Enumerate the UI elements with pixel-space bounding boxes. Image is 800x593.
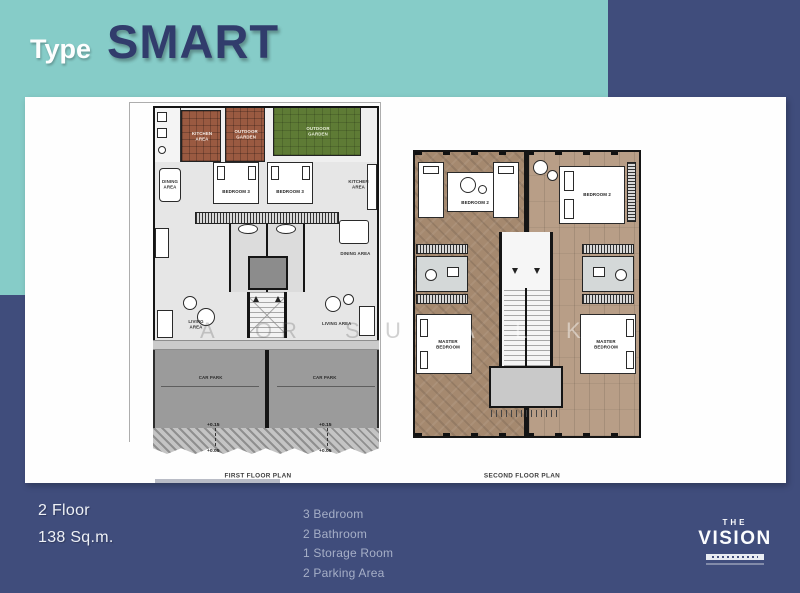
second-floor-caption: SECOND FLOOR PLAN: [462, 472, 582, 479]
wardrobe-strip: [416, 294, 468, 304]
spec-list: 3 Bedroom 2 Bathroom 1 Storage Room 2 Pa…: [303, 505, 393, 583]
wardrobe-strip: [416, 244, 468, 254]
table-icon: [460, 177, 476, 193]
party-wall: [265, 350, 269, 428]
table-icon: [183, 296, 197, 310]
dining-table-icon: [159, 168, 181, 202]
kitchen-area-left: KITCHEN AREA: [181, 110, 221, 162]
master-bed-right: MASTER BEDROOM: [580, 314, 636, 374]
type-label: Type: [30, 34, 91, 65]
pillow-icon: [626, 351, 634, 369]
bathroom-left: [416, 256, 468, 292]
closet-strip: [195, 212, 339, 224]
pillow-icon: [217, 166, 225, 180]
logo-the-text: THE: [697, 518, 773, 527]
bed-icon: BEDROOM 2: [559, 166, 625, 224]
brochure-page: Type SMART KITCHEN AREA: [0, 0, 800, 593]
logo-vision-text: VISION: [697, 528, 773, 550]
toilet-icon: [238, 224, 258, 234]
kitchen-nook: [153, 106, 181, 162]
wardrobe-strip: [627, 162, 636, 222]
master-bed-left: MASTER BEDROOM: [416, 314, 472, 374]
balcony-railing: [491, 410, 561, 417]
pillow-icon: [271, 166, 279, 180]
sink-icon: [158, 146, 166, 154]
the-vision-logo: THE VISION: [697, 518, 773, 565]
spec-item-bedroom: 3 Bedroom: [303, 505, 393, 525]
second-floor-plan: BEDROOM 2 MASTER BEDROOM BEDROOM 2: [413, 148, 641, 440]
logo-tagline-bar: [706, 554, 764, 560]
balcony: [489, 366, 563, 408]
kitchen-counter-icon: [367, 164, 377, 210]
dining-table-icon: [339, 220, 369, 244]
table-icon: [343, 294, 354, 305]
bed-icon: [493, 162, 519, 218]
toilet-icon: [615, 269, 627, 281]
elevation-leader-line: [327, 428, 328, 446]
elevation-leader-line: [215, 428, 216, 446]
toilet-icon: [276, 224, 296, 234]
stairs-up-arrow-icon: [275, 296, 281, 302]
bathroom-right: [582, 256, 634, 292]
chair-icon: [478, 185, 487, 194]
sofa-icon: [359, 306, 375, 336]
car-park-right-label: CAR PARK: [313, 375, 337, 380]
outdoor-garden-brown: OUTDOOR GARDEN: [225, 106, 265, 162]
storage-room: [248, 256, 288, 290]
storage-cabinet-icon: [155, 228, 169, 258]
elevation-marker: +0.05: [207, 448, 220, 454]
pillow-icon: [302, 166, 310, 180]
area-size: 138 Sq.m.: [38, 529, 114, 547]
stair-shaft: [499, 232, 553, 370]
spec-item-storage: 1 Storage Room: [303, 544, 393, 564]
pillow-icon: [420, 351, 428, 369]
bathroom-block: [229, 214, 305, 294]
table-icon: [325, 296, 341, 312]
pillow-icon: [626, 319, 634, 337]
scale-bar: [155, 479, 280, 483]
driveway-line: [277, 386, 375, 387]
wardrobe-strip: [582, 244, 634, 254]
road-hatch: [153, 428, 379, 454]
master-bedroom-left-label: MASTER BEDROOM: [436, 340, 460, 351]
pillow-icon: [564, 199, 574, 219]
appliance-icon: [157, 128, 167, 138]
outdoor-garden-green: OUTDOOR GARDEN: [273, 106, 361, 156]
master-bedroom-right-label: MASTER BEDROOM: [594, 340, 618, 351]
chair-icon: [547, 170, 558, 181]
first-floor-drawing: KITCHEN AREA OUTDOOR GARDEN OUTDOOR GARD…: [153, 106, 379, 454]
bed-icon: [267, 162, 313, 204]
bed-icon: [213, 162, 259, 204]
bedroom2-right-label: BEDROOM 2: [583, 192, 611, 197]
pillow-icon: [564, 171, 574, 191]
table-icon: [197, 308, 215, 326]
bed-icon: [418, 162, 444, 218]
stairs-up-arrow-icon: [253, 296, 259, 302]
elevation-marker: +0.05: [319, 448, 332, 454]
elevation-marker: +0.15: [319, 422, 332, 428]
logo-subline: [706, 563, 764, 565]
living-row: LIVING AREA LIVING AREA: [153, 292, 379, 340]
sink-icon: [447, 267, 459, 277]
model-name: SMART: [107, 14, 279, 69]
middle-row: DINING AREA: [153, 212, 379, 292]
outdoor-garden-green-label: OUTDOOR GARDEN: [305, 127, 330, 138]
dining-area-right-label: DINING AREA: [340, 251, 370, 256]
floor-count: 2 Floor: [38, 502, 114, 520]
car-park-area: CAR PARK CAR PARK: [153, 350, 379, 428]
living-area-right-label: LIVING AREA: [322, 321, 351, 326]
car-park-left-label: CAR PARK: [199, 375, 223, 380]
elevation-marker: +0.15: [207, 422, 220, 428]
terrace-strip: [153, 340, 379, 350]
garden-row: KITCHEN AREA OUTDOOR GARDEN OUTDOOR GARD…: [153, 106, 379, 162]
spec-summary: 2 Floor 138 Sq.m.: [38, 502, 114, 547]
first-floor-plan: KITCHEN AREA OUTDOOR GARDEN OUTDOOR GARD…: [127, 100, 390, 473]
kitchen-area-left-label: KITCHEN AREA: [191, 132, 213, 143]
spec-item-bathroom: 2 Bathroom: [303, 525, 393, 545]
stairs-down-arrow-icon: [512, 268, 518, 274]
outdoor-garden-brown-label: OUTDOOR GARDEN: [234, 130, 257, 141]
pillow-icon: [420, 319, 428, 337]
sofa-icon: [157, 310, 173, 338]
driveway-line: [161, 386, 259, 387]
bedroom-row: DINING AREA BEDROOM 3 BEDROOM 3 KITC: [153, 162, 379, 212]
pillow-icon: [248, 166, 256, 180]
appliance-icon: [157, 112, 167, 122]
pillow-icon: [498, 166, 514, 174]
stair-rail: [525, 288, 527, 368]
stairs-down-arrow-icon: [534, 268, 540, 274]
stair-treads: [504, 290, 550, 366]
wardrobe-strip: [582, 294, 634, 304]
sink-icon: [593, 267, 605, 277]
page-title: Type SMART: [30, 14, 279, 69]
pillow-icon: [423, 166, 439, 174]
kitchen-area-right-label: KITCHEN AREA: [348, 180, 368, 191]
chair-icon: [533, 160, 548, 175]
spec-item-parking: 2 Parking Area: [303, 564, 393, 584]
toilet-icon: [425, 269, 437, 281]
bedroom2-left-label: BEDROOM 2: [461, 200, 489, 205]
